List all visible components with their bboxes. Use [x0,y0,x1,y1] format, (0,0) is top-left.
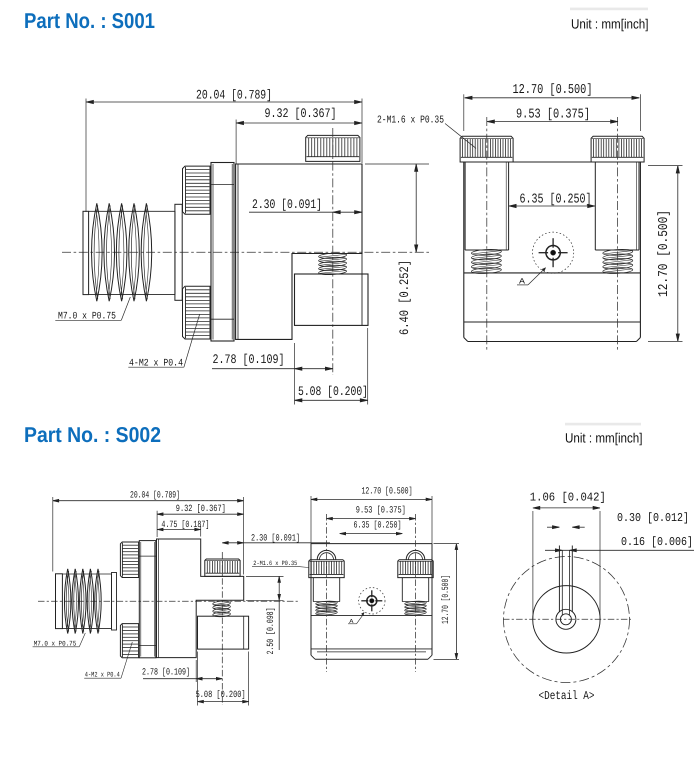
svg-text:9.32 [0.367]: 9.32 [0.367] [265,106,337,121]
svg-text:Unit : mm[inch]: Unit : mm[inch] [571,16,649,31]
svg-text:12.70 [0.500]: 12.70 [0.500] [657,210,672,297]
svg-text:9.53 [0.375]: 9.53 [0.375] [516,107,590,122]
svg-text:2.30 [0.091]: 2.30 [0.091] [251,533,300,544]
svg-text:12.70 [0.500]: 12.70 [0.500] [362,486,413,497]
svg-text:9.32 [0.367]: 9.32 [0.367] [176,503,226,514]
svg-text:2.30 [0.091]: 2.30 [0.091] [252,197,322,212]
svg-text:Part No. : S001: Part No. : S001 [24,9,155,33]
svg-text:2.78 [0.109]: 2.78 [0.109] [213,352,285,367]
svg-text:M7.0 x P0.75: M7.0 x P0.75 [58,312,116,323]
svg-text:6.35 [0.250]: 6.35 [0.250] [520,192,592,207]
svg-text:2-M1.6 x P0.35: 2-M1.6 x P0.35 [253,560,297,567]
svg-text:4.75 [0.187]: 4.75 [0.187] [161,519,209,530]
svg-text:2.78 [0.109]: 2.78 [0.109] [142,667,190,678]
svg-text:4-M2 x P0.4: 4-M2 x P0.4 [129,359,183,370]
svg-text:M7.0 x P0.75: M7.0 x P0.75 [34,641,77,649]
svg-text:2-M1.6 x P0.35: 2-M1.6 x P0.35 [377,115,444,127]
svg-text:6.35 [0.250]: 6.35 [0.250] [354,520,402,531]
svg-text:0.16 [0.006]: 0.16 [0.006] [621,535,693,549]
svg-text:12.70 [0.500]: 12.70 [0.500] [440,575,451,624]
svg-text:20.04 [0.789]: 20.04 [0.789] [130,490,180,501]
svg-text:20.04 [0.789]: 20.04 [0.789] [196,87,272,102]
svg-text:5.08 [0.200]: 5.08 [0.200] [196,689,246,700]
svg-text:6.40 [0.252]: 6.40 [0.252] [397,260,412,335]
svg-text:<Detail A>: <Detail A> [539,689,595,703]
svg-text:2.50 [0.098]: 2.50 [0.098] [265,608,276,655]
svg-text:1.06 [0.042]: 1.06 [0.042] [530,490,606,504]
svg-text:5.08 [0.200]: 5.08 [0.200] [298,384,368,399]
svg-text:9.53 [0.375]: 9.53 [0.375] [356,505,406,516]
svg-text:Part No. : S002: Part No. : S002 [24,423,161,447]
svg-text:12.70 [0.500]: 12.70 [0.500] [513,83,593,98]
svg-text:0.30 [0.012]: 0.30 [0.012] [617,511,689,525]
svg-text:Unit : mm[inch]: Unit : mm[inch] [565,431,643,446]
